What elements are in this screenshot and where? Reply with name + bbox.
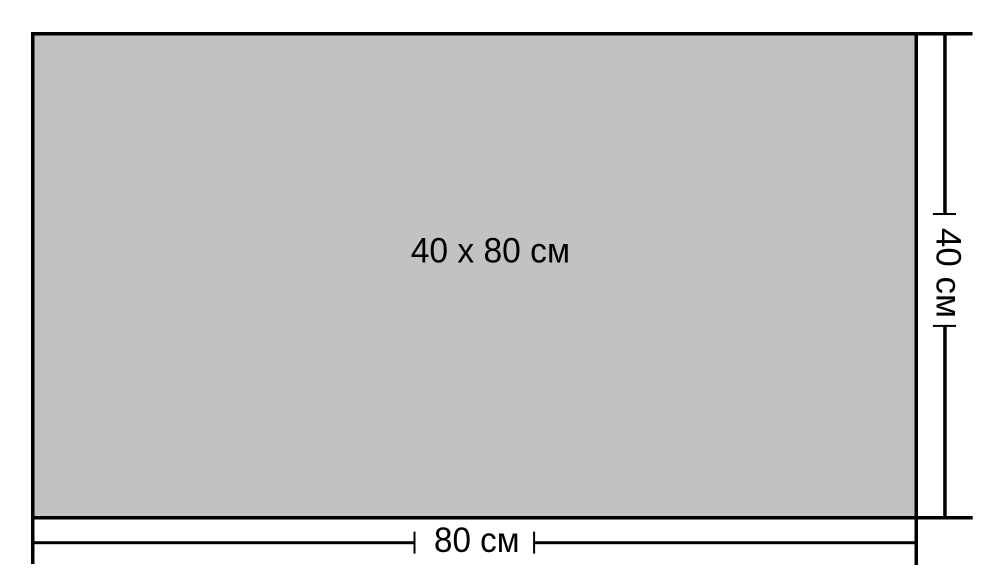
svg-text:40 см: 40 см xyxy=(928,228,968,318)
svg-text:80 см: 80 см xyxy=(434,520,520,560)
svg-text:40 x 80 см: 40 x 80 см xyxy=(411,230,570,270)
